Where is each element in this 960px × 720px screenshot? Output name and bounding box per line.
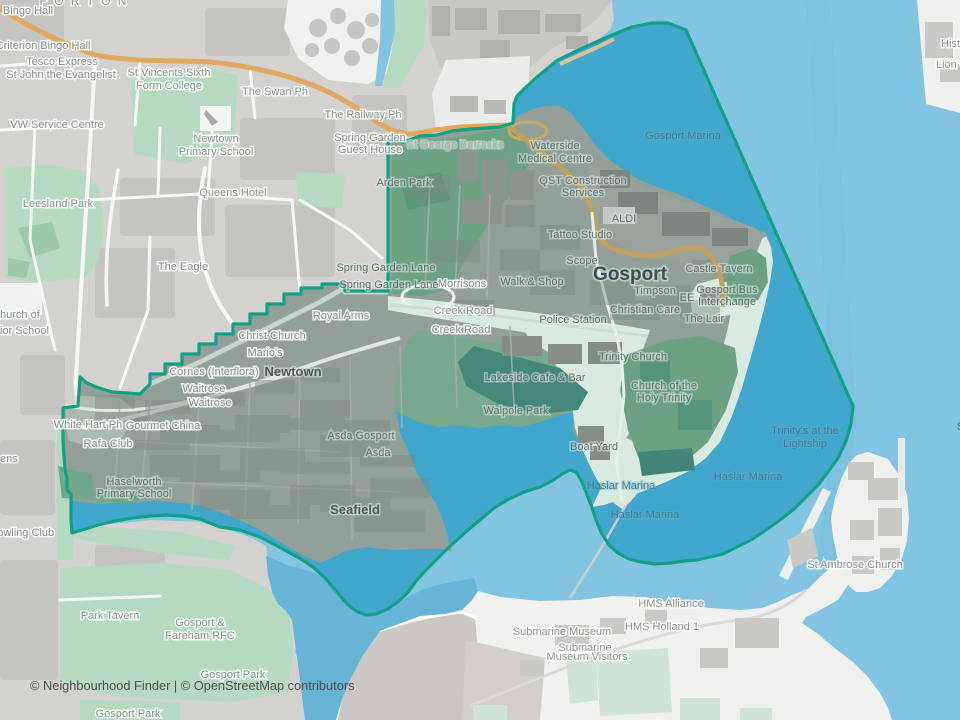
svg-text:Gosport &: Gosport & bbox=[175, 617, 225, 629]
svg-text:Walk & Shop: Walk & Shop bbox=[500, 276, 563, 288]
svg-text:Services: Services bbox=[562, 187, 605, 199]
svg-text:ALDI: ALDI bbox=[612, 213, 636, 225]
svg-text:Arden Park: Arden Park bbox=[376, 177, 432, 189]
svg-text:© Neighbourhood Finder | © Ope: © Neighbourhood Finder | © OpenStreetMap… bbox=[30, 678, 355, 693]
svg-text:Fareham RFC: Fareham RFC bbox=[165, 630, 235, 642]
svg-text:Rafa Club: Rafa Club bbox=[84, 438, 133, 450]
svg-text:Waitrose: Waitrose bbox=[183, 383, 226, 395]
svg-text:Museum Visitors: Museum Visitors bbox=[546, 651, 628, 663]
svg-text:Medical Centre: Medical Centre bbox=[518, 153, 592, 165]
svg-text:Interchange: Interchange bbox=[698, 296, 756, 308]
svg-text:Lightship: Lightship bbox=[783, 438, 827, 450]
svg-text:hurch of: hurch of bbox=[0, 309, 41, 321]
svg-text:Queens Hotel: Queens Hotel bbox=[199, 187, 266, 199]
svg-text:EE: EE bbox=[680, 292, 695, 304]
svg-text:St John the Evangelist: St John the Evangelist bbox=[6, 69, 115, 81]
svg-text:St George Barracks: St George Barracks bbox=[407, 139, 504, 151]
svg-text:Morrisons: Morrisons bbox=[438, 278, 487, 290]
svg-text:Creek Road: Creek Road bbox=[432, 324, 491, 336]
svg-text:Trinity Church: Trinity Church bbox=[599, 351, 667, 363]
svg-text:Walpole Park: Walpole Park bbox=[483, 405, 549, 417]
svg-text:Haslar Marina: Haslar Marina bbox=[714, 471, 783, 483]
svg-text:Church of the: Church of the bbox=[631, 380, 697, 392]
svg-text:Asda: Asda bbox=[365, 447, 391, 459]
svg-text:Gosport: Gosport bbox=[593, 264, 668, 285]
svg-text:Waitrose: Waitrose bbox=[189, 397, 232, 409]
svg-text:Timpson: Timpson bbox=[634, 285, 676, 297]
svg-text:Spring Garden Lane: Spring Garden Lane bbox=[336, 262, 435, 274]
svg-text:Bingo Hall: Bingo Hall bbox=[3, 5, 53, 17]
svg-text:Boat Yard: Boat Yard bbox=[570, 441, 618, 453]
svg-text:Gosport Marina: Gosport Marina bbox=[645, 130, 722, 142]
svg-text:Haslar Marina: Haslar Marina bbox=[611, 509, 680, 521]
svg-text:Gosport Park: Gosport Park bbox=[96, 708, 161, 720]
svg-text:Mario's: Mario's bbox=[247, 347, 283, 359]
svg-text:The Swan Ph: The Swan Ph bbox=[242, 86, 308, 98]
svg-text:Christ Church: Christ Church bbox=[238, 330, 305, 342]
svg-text:Haselworth: Haselworth bbox=[106, 476, 161, 488]
svg-text:Form College: Form College bbox=[136, 80, 202, 92]
svg-text:Police Station: Police Station bbox=[539, 314, 606, 326]
svg-text:Cornes (Interflora): Cornes (Interflora) bbox=[169, 366, 258, 378]
svg-text:Christian Care: Christian Care bbox=[610, 304, 680, 316]
svg-text:Histo: Histo bbox=[941, 38, 960, 50]
svg-text:St Vincents Sixth: St Vincents Sixth bbox=[128, 67, 211, 79]
svg-text:VW Service Centre: VW Service Centre bbox=[10, 119, 104, 131]
svg-text:Tesco Express: Tesco Express bbox=[26, 56, 98, 68]
svg-text:ens: ens bbox=[0, 453, 18, 465]
svg-text:Trinity's at the: Trinity's at the bbox=[771, 425, 839, 437]
svg-text:White Hart Ph: White Hart Ph bbox=[54, 419, 122, 431]
svg-text:Gosport Bus: Gosport Bus bbox=[696, 284, 758, 296]
svg-text:Spring Garden Lane: Spring Garden Lane bbox=[339, 279, 438, 291]
svg-text:HMS Holland 1: HMS Holland 1 bbox=[625, 621, 699, 633]
svg-text:St Ambrose Church: St Ambrose Church bbox=[807, 559, 902, 571]
svg-text:Guest House: Guest House bbox=[338, 144, 402, 156]
svg-text:Primary School: Primary School bbox=[97, 488, 172, 500]
svg-text:Gourmet China: Gourmet China bbox=[126, 420, 201, 432]
svg-text:Royal Arms: Royal Arms bbox=[313, 310, 370, 322]
svg-text:Asda Gosport: Asda Gosport bbox=[327, 430, 394, 442]
svg-text:Seafield: Seafield bbox=[330, 502, 380, 517]
svg-text:Criterion Bingo Hall: Criterion Bingo Hall bbox=[0, 40, 90, 52]
svg-text:Holy Trinity: Holy Trinity bbox=[637, 392, 692, 404]
svg-text:HMS Alliance: HMS Alliance bbox=[638, 598, 703, 610]
svg-text:Tattoo Studio: Tattoo Studio bbox=[548, 229, 612, 241]
svg-text:Haslar Marina: Haslar Marina bbox=[587, 480, 656, 492]
svg-text:Lakeside Cafe & Bar: Lakeside Cafe & Bar bbox=[485, 372, 586, 384]
svg-text:Newtown: Newtown bbox=[193, 133, 238, 145]
svg-text:Waterside: Waterside bbox=[530, 140, 579, 152]
svg-text:Leesland Park: Leesland Park bbox=[23, 198, 94, 210]
svg-text:Bowling Club: Bowling Club bbox=[0, 527, 54, 539]
svg-text:QST Construction: QST Construction bbox=[539, 175, 626, 187]
svg-text:Submarine Museum: Submarine Museum bbox=[513, 626, 611, 638]
svg-text:Primary School: Primary School bbox=[179, 146, 254, 158]
svg-text:Castle Tavern: Castle Tavern bbox=[685, 263, 752, 275]
svg-text:The Lair: The Lair bbox=[684, 313, 725, 325]
svg-text:Newtown: Newtown bbox=[264, 364, 321, 379]
svg-text:ior School: ior School bbox=[0, 325, 49, 337]
svg-text:Park Tavern: Park Tavern bbox=[81, 610, 140, 622]
svg-text:Spring Garden: Spring Garden bbox=[334, 132, 406, 144]
svg-text:Lion G: Lion G bbox=[936, 59, 960, 71]
svg-text:Creek Road: Creek Road bbox=[434, 305, 493, 317]
svg-text:The Railway Ph: The Railway Ph bbox=[324, 109, 401, 121]
svg-text:The Eagle: The Eagle bbox=[158, 261, 208, 273]
